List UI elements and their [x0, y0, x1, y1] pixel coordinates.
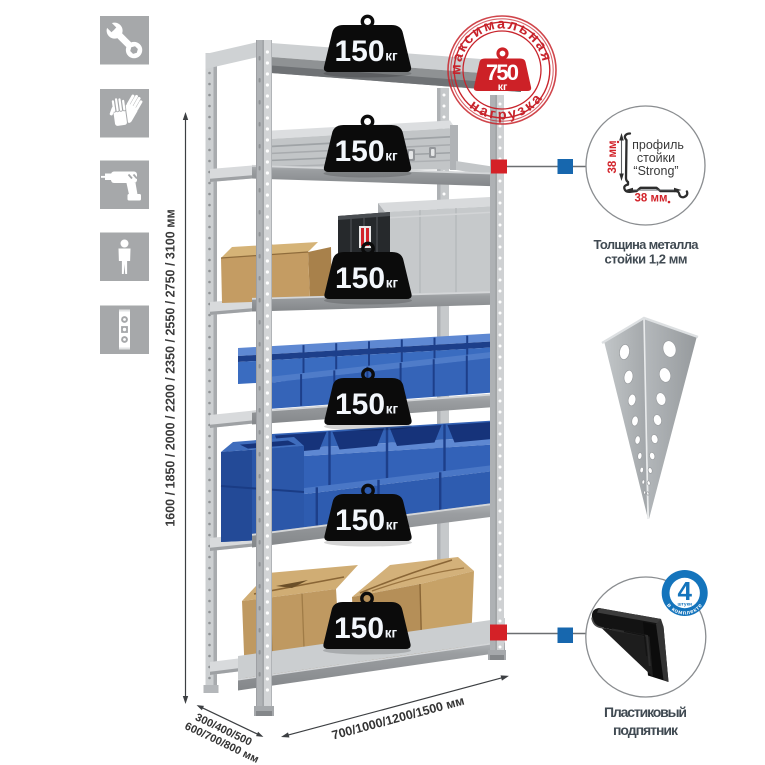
svg-text:кг: кг — [386, 276, 399, 291]
svg-text:150: 150 — [334, 612, 384, 645]
svg-text:38 мм: 38 мм — [607, 140, 619, 173]
svg-text:подпятник: подпятник — [613, 722, 679, 738]
svg-text:150: 150 — [335, 504, 385, 537]
svg-text:150: 150 — [335, 388, 385, 421]
svg-text:штуки: штуки — [677, 603, 692, 608]
svg-text:150: 150 — [334, 35, 384, 68]
svg-text:Пластиковый: Пластиковый — [604, 704, 687, 720]
svg-text:кг: кг — [386, 402, 399, 417]
svg-text:кг: кг — [385, 149, 398, 164]
svg-text:“Strong”: “Strong” — [633, 164, 678, 178]
svg-text:150: 150 — [335, 262, 385, 295]
svg-text:кг: кг — [498, 81, 508, 93]
svg-text:кг: кг — [385, 626, 398, 641]
svg-text:профиль: профиль — [632, 138, 684, 152]
svg-text:1600 / 1850 / 2000 / 2200 / 23: 1600 / 1850 / 2000 / 2200 / 2350 / 2550 … — [164, 209, 178, 526]
svg-text:Толщина металла: Толщина металла — [594, 237, 700, 252]
svg-text:4: 4 — [677, 576, 692, 606]
svg-text:38 мм: 38 мм — [634, 193, 667, 205]
svg-text:кг: кг — [386, 518, 399, 533]
svg-text:стойки: стойки — [637, 151, 675, 165]
svg-text:150: 150 — [334, 135, 384, 168]
svg-text:стойки 1,2 мм: стойки 1,2 мм — [605, 252, 688, 267]
svg-text:кг: кг — [385, 49, 398, 64]
